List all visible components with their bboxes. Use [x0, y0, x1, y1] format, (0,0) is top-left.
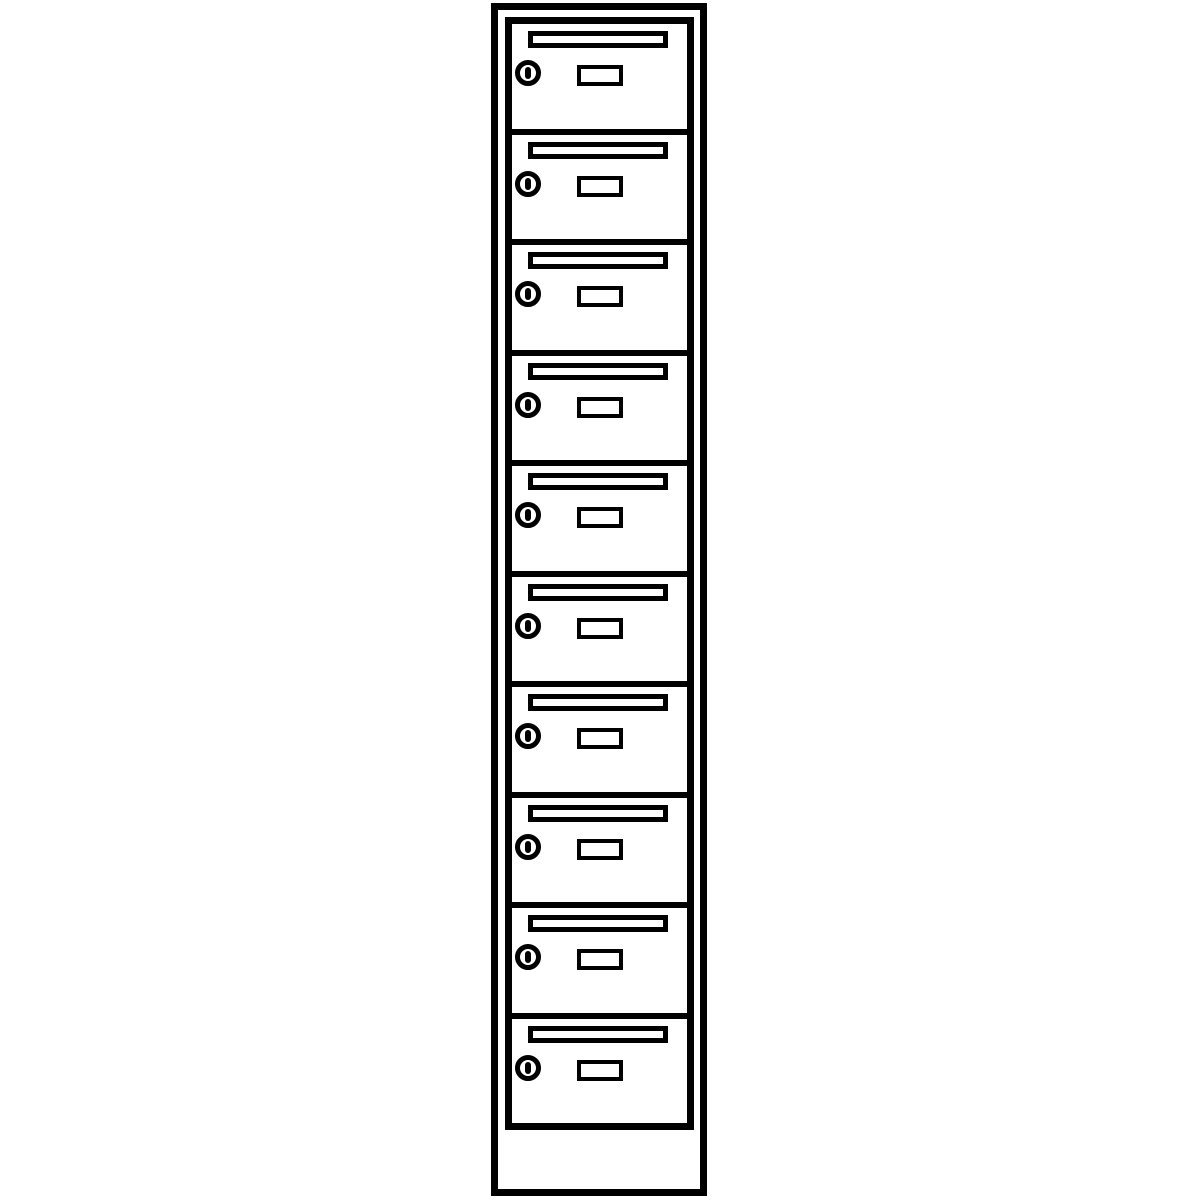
compartment-10 [512, 1019, 687, 1124]
name-plate [577, 176, 623, 197]
mail-slot-icon [528, 31, 668, 48]
name-plate [577, 618, 623, 639]
keyhole-bar-icon [525, 288, 531, 300]
compartment-8 [512, 798, 687, 903]
keyhole-lock-icon [515, 834, 541, 860]
mail-slot-icon [528, 252, 668, 269]
compartment-3 [512, 245, 687, 350]
keyhole-bar-icon [525, 67, 531, 79]
name-plate [577, 397, 623, 418]
compartment-column [505, 17, 694, 1130]
mail-slot-icon [528, 915, 668, 932]
keyhole-lock-icon [515, 944, 541, 970]
compartment-6 [512, 577, 687, 682]
mail-slot-icon [528, 584, 668, 601]
keyhole-lock-icon [515, 392, 541, 418]
cabinet-outer-frame [491, 3, 707, 1196]
compartment-2 [512, 135, 687, 240]
name-plate [577, 507, 623, 528]
name-plate [577, 728, 623, 749]
name-plate [577, 286, 623, 307]
keyhole-lock-icon [515, 723, 541, 749]
mail-slot-icon [528, 694, 668, 711]
mail-slot-icon [528, 142, 668, 159]
mail-slot-icon [528, 805, 668, 822]
name-plate [577, 839, 623, 860]
keyhole-lock-icon [515, 613, 541, 639]
compartment-5 [512, 466, 687, 571]
mail-slot-icon [528, 363, 668, 380]
keyhole-bar-icon [525, 951, 531, 963]
keyhole-lock-icon [515, 171, 541, 197]
keyhole-bar-icon [525, 1062, 531, 1074]
keyhole-lock-icon [515, 60, 541, 86]
keyhole-bar-icon [525, 178, 531, 190]
keyhole-lock-icon [515, 1055, 541, 1081]
keyhole-lock-icon [515, 502, 541, 528]
drawing-canvas [0, 0, 1200, 1200]
mail-slot-icon [528, 1026, 668, 1043]
keyhole-bar-icon [525, 841, 531, 853]
name-plate [577, 949, 623, 970]
keyhole-bar-icon [525, 399, 531, 411]
compartment-4 [512, 356, 687, 461]
compartment-1 [512, 24, 687, 129]
name-plate [577, 65, 623, 86]
keyhole-bar-icon [525, 730, 531, 742]
compartment-7 [512, 687, 687, 792]
plinth-base [505, 1137, 694, 1189]
name-plate [577, 1060, 623, 1081]
mail-slot-icon [528, 473, 668, 490]
compartment-9 [512, 908, 687, 1013]
keyhole-bar-icon [525, 509, 531, 521]
keyhole-lock-icon [515, 281, 541, 307]
keyhole-bar-icon [525, 620, 531, 632]
